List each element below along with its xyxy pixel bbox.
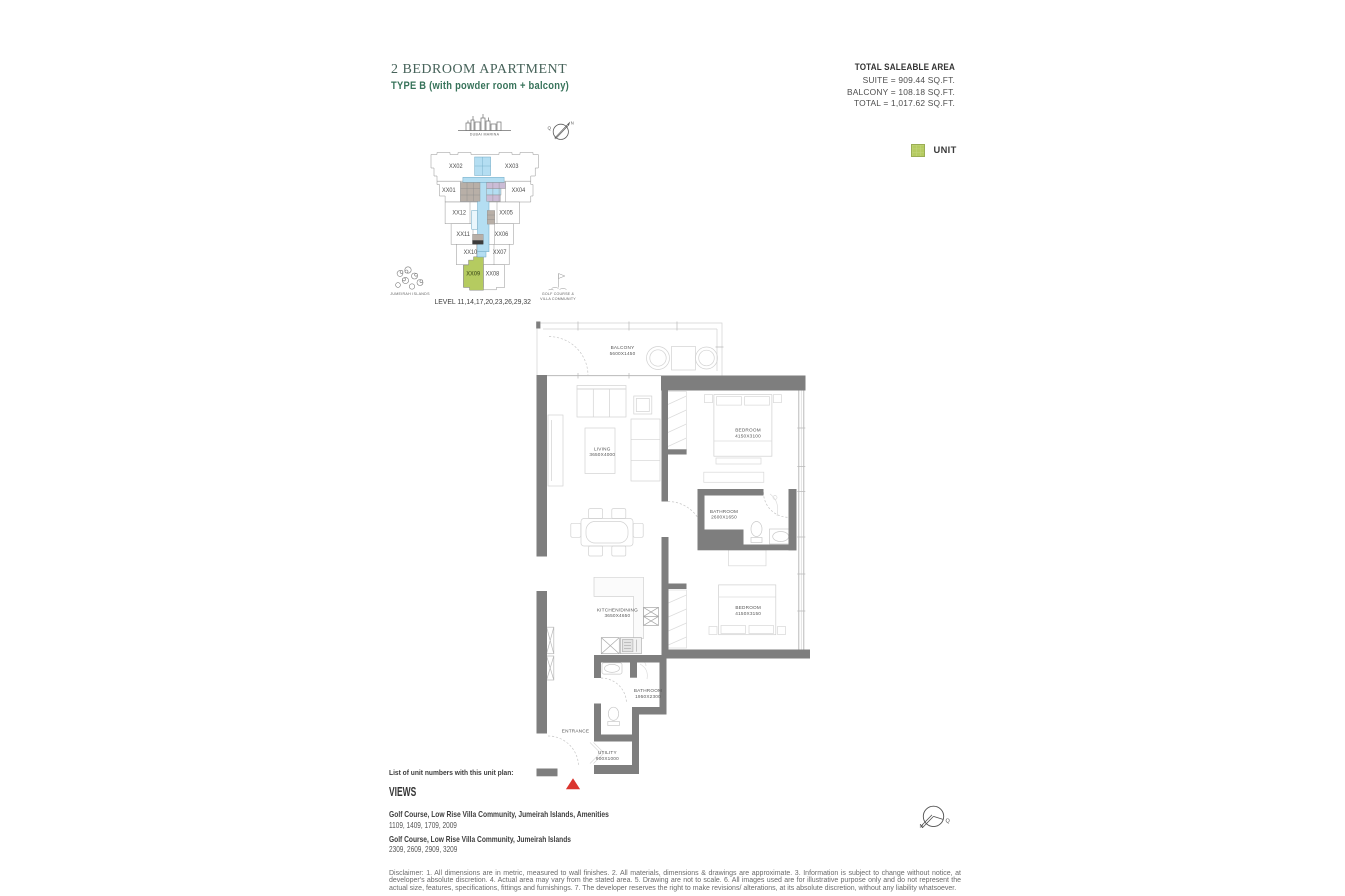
svg-text:XX04: XX04: [512, 187, 526, 194]
svg-text:ENTRANCE: ENTRANCE: [562, 729, 589, 734]
svg-text:XX11: XX11: [456, 231, 470, 238]
svg-text:BEDROOM: BEDROOM: [735, 605, 761, 610]
svg-text:BEDROOM: BEDROOM: [735, 428, 761, 433]
svg-text:N: N: [571, 121, 574, 126]
svg-text:GOLF COURSE &: GOLF COURSE &: [542, 292, 575, 296]
svg-text:N: N: [920, 824, 924, 830]
svg-text:BATHROOM: BATHROOM: [710, 509, 738, 514]
svg-text:4150X3100: 4150X3100: [735, 433, 761, 438]
svg-text:BATHROOM: BATHROOM: [634, 688, 662, 693]
svg-text:VILLA COMMUNITY: VILLA COMMUNITY: [540, 297, 576, 301]
svg-text:3650X4650: 3650X4650: [605, 613, 631, 618]
svg-text:XX06: XX06: [495, 231, 509, 238]
svg-text:LEVEL 11,14,17,20,23,26,29,32: LEVEL 11,14,17,20,23,26,29,32: [434, 297, 531, 306]
svg-text:Q: Q: [946, 819, 951, 825]
svg-text:4150X3150: 4150X3150: [735, 611, 761, 616]
svg-text:UTILITY: UTILITY: [598, 750, 618, 755]
svg-text:2600X1650: 2600X1650: [711, 515, 737, 520]
svg-text:900X1000: 900X1000: [596, 756, 619, 761]
svg-text:1950X2300: 1950X2300: [635, 694, 661, 699]
svg-text:KITCHEN/DINING: KITCHEN/DINING: [597, 607, 638, 612]
svg-text:BALCONY: BALCONY: [611, 345, 635, 350]
svg-text:Q: Q: [548, 126, 552, 131]
svg-text:LIVING: LIVING: [594, 446, 611, 451]
svg-text:XX08: XX08: [486, 271, 500, 278]
svg-text:5600X1450: 5600X1450: [610, 351, 636, 356]
svg-text:XX09: XX09: [466, 271, 481, 278]
svg-text:DUBAI MARINA: DUBAI MARINA: [470, 133, 500, 137]
svg-text:JUMEIRAH ISLANDS: JUMEIRAH ISLANDS: [390, 292, 430, 296]
svg-text:XX10: XX10: [464, 249, 478, 256]
svg-text:XX12: XX12: [452, 209, 466, 216]
svg-text:XX05: XX05: [499, 209, 513, 216]
svg-text:3650X4000: 3650X4000: [589, 452, 615, 457]
svg-text:XX07: XX07: [493, 249, 507, 256]
svg-text:XX03: XX03: [505, 163, 519, 170]
svg-text:XX02: XX02: [449, 163, 463, 170]
svg-text:XX01: XX01: [442, 187, 456, 194]
